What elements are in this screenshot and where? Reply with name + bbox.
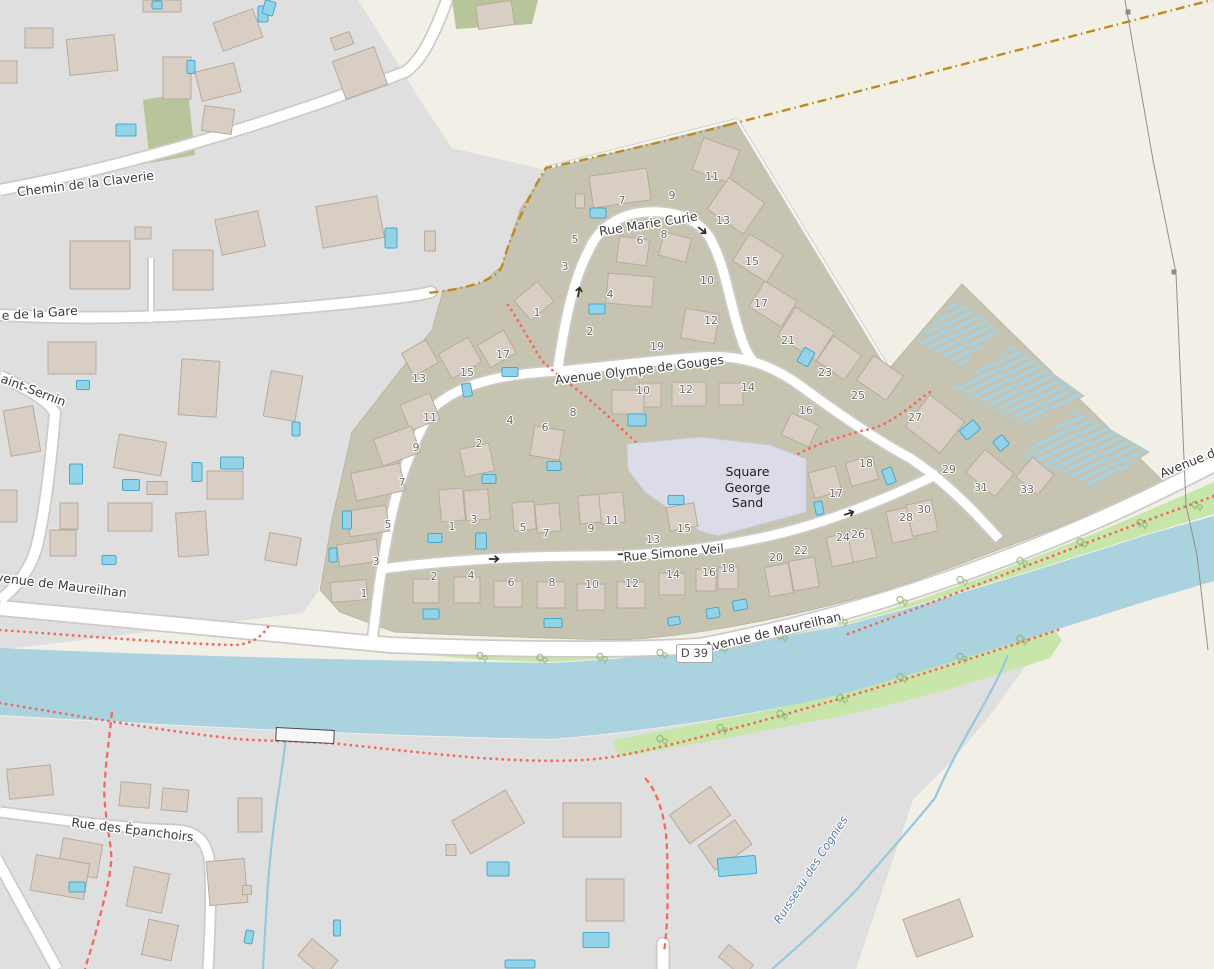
house-number: 5 bbox=[385, 518, 392, 531]
house-number: 22 bbox=[794, 544, 808, 557]
house-number: 33 bbox=[1020, 483, 1034, 496]
building bbox=[176, 511, 209, 557]
house-number: 9 bbox=[413, 441, 420, 454]
house-number: 9 bbox=[588, 522, 595, 535]
building bbox=[119, 782, 151, 809]
house-number: 31 bbox=[974, 481, 988, 494]
house-number: 14 bbox=[666, 568, 680, 581]
building bbox=[178, 359, 220, 418]
swimming-pool bbox=[244, 930, 254, 944]
house-number: 13 bbox=[646, 533, 660, 546]
house-number: 16 bbox=[799, 404, 813, 417]
building bbox=[563, 803, 621, 837]
swimming-pool bbox=[343, 511, 352, 529]
building bbox=[576, 194, 585, 208]
house-number: 11 bbox=[705, 170, 719, 183]
house-number: 3 bbox=[562, 260, 569, 273]
house-number: 8 bbox=[549, 576, 556, 589]
house-number: 18 bbox=[859, 457, 873, 470]
swimming-pool bbox=[544, 619, 562, 628]
house-number: 4 bbox=[468, 569, 475, 582]
swimming-pool bbox=[476, 533, 487, 549]
house-number: 28 bbox=[899, 511, 913, 524]
house-number: 10 bbox=[636, 384, 650, 397]
swimming-pool bbox=[221, 457, 244, 469]
building bbox=[161, 788, 189, 812]
swimming-pool bbox=[547, 462, 561, 471]
swimming-pool bbox=[423, 609, 439, 619]
swimming-pool bbox=[70, 464, 83, 484]
building bbox=[60, 503, 78, 529]
swimming-pool bbox=[102, 556, 116, 565]
house-number: 17 bbox=[496, 348, 510, 361]
house-number: 7 bbox=[619, 194, 626, 207]
house-number: 25 bbox=[851, 389, 865, 402]
swimming-pool bbox=[116, 124, 136, 136]
swimming-pool bbox=[502, 368, 518, 377]
house-number: 11 bbox=[423, 411, 437, 424]
house-number: 6 bbox=[542, 421, 549, 434]
house-number: 5 bbox=[572, 233, 579, 246]
building bbox=[135, 227, 151, 239]
house-number: 15 bbox=[677, 522, 691, 535]
house-number: 12 bbox=[679, 383, 693, 396]
house-number: 12 bbox=[625, 577, 639, 590]
building bbox=[206, 858, 248, 905]
building bbox=[7, 765, 54, 799]
swimming-pool bbox=[187, 61, 195, 74]
building bbox=[207, 471, 243, 499]
house-number: 7 bbox=[543, 527, 550, 540]
house-number: 2 bbox=[431, 570, 438, 583]
house-number: 2 bbox=[476, 437, 483, 450]
house-number: 6 bbox=[637, 234, 644, 247]
house-number: 14 bbox=[741, 381, 755, 394]
swimming-pool bbox=[482, 475, 496, 484]
road-ref-badge-d39: D 39 bbox=[676, 644, 713, 663]
house-number: 8 bbox=[661, 228, 668, 241]
building bbox=[70, 241, 130, 289]
house-number: 24 bbox=[836, 531, 850, 544]
house-number: 3 bbox=[373, 555, 380, 568]
house-number: 3 bbox=[471, 513, 478, 526]
building bbox=[789, 557, 820, 591]
swimming-pool bbox=[461, 383, 472, 397]
house-number: 21 bbox=[781, 334, 795, 347]
map-rendering: Chemin de la Claveriee de la Gareaint-Se… bbox=[0, 0, 1214, 969]
swimming-pool bbox=[717, 855, 756, 876]
house-number: 29 bbox=[942, 463, 956, 476]
house-number: 27 bbox=[908, 411, 922, 424]
square-label-line3: Sand bbox=[700, 495, 795, 511]
house-number: 6 bbox=[508, 576, 515, 589]
building bbox=[476, 1, 515, 30]
building bbox=[126, 867, 170, 914]
house-number: 17 bbox=[829, 487, 843, 500]
swimming-pool bbox=[505, 960, 535, 968]
building bbox=[586, 879, 624, 921]
swimming-pool bbox=[334, 920, 341, 936]
house-number: 15 bbox=[460, 366, 474, 379]
house-number: 8 bbox=[570, 406, 577, 419]
swimming-pool bbox=[428, 534, 442, 543]
house-number: 1 bbox=[361, 587, 368, 600]
house-number: 23 bbox=[818, 366, 832, 379]
swimming-pool bbox=[706, 607, 721, 619]
building bbox=[616, 236, 649, 266]
house-number: 5 bbox=[520, 521, 527, 534]
building bbox=[265, 532, 301, 565]
building bbox=[25, 28, 53, 48]
swimming-pool bbox=[385, 228, 397, 248]
building bbox=[439, 488, 466, 522]
building bbox=[446, 845, 456, 856]
square-label-line1: Square bbox=[700, 464, 795, 480]
house-number: 30 bbox=[917, 503, 931, 516]
house-number: 13 bbox=[412, 372, 426, 385]
house-number: 9 bbox=[669, 189, 676, 202]
house-number: 1 bbox=[534, 306, 541, 319]
house-number: 4 bbox=[507, 414, 514, 427]
house-number: 16 bbox=[702, 566, 716, 579]
building bbox=[0, 61, 17, 83]
building bbox=[66, 35, 118, 76]
building bbox=[48, 342, 96, 374]
building bbox=[346, 505, 389, 536]
building bbox=[425, 231, 436, 251]
building bbox=[238, 798, 262, 832]
swimming-pool bbox=[123, 480, 140, 491]
building bbox=[173, 250, 213, 290]
house-number: 1 bbox=[449, 520, 456, 533]
house-number: 15 bbox=[745, 255, 759, 268]
map-canvas[interactable]: Chemin de la Claveriee de la Gareaint-Se… bbox=[0, 0, 1214, 969]
house-number: 10 bbox=[585, 578, 599, 591]
building bbox=[765, 563, 794, 597]
swimming-pool bbox=[732, 599, 748, 611]
swimming-pool bbox=[589, 304, 605, 314]
house-number: 12 bbox=[704, 314, 718, 327]
swimming-pool bbox=[628, 414, 646, 426]
square-label-line2: George bbox=[700, 480, 795, 496]
swimming-pool bbox=[77, 381, 90, 390]
house-number: 18 bbox=[721, 562, 735, 575]
building bbox=[578, 494, 602, 524]
house-number: 4 bbox=[607, 288, 614, 301]
swimming-pool bbox=[329, 548, 337, 562]
house-number: 20 bbox=[769, 551, 783, 564]
square-george-sand-label: Square George Sand bbox=[700, 464, 795, 511]
swimming-pool bbox=[590, 208, 606, 218]
swimming-pool bbox=[292, 422, 300, 436]
house-number: 26 bbox=[851, 528, 865, 541]
building bbox=[243, 886, 252, 895]
house-number: 2 bbox=[587, 325, 594, 338]
building bbox=[147, 482, 167, 495]
building bbox=[50, 530, 76, 556]
footbridge bbox=[276, 727, 335, 743]
building bbox=[108, 503, 152, 531]
building bbox=[719, 383, 743, 405]
swimming-pool bbox=[583, 933, 609, 948]
house-number: 10 bbox=[700, 274, 714, 287]
swimming-pool bbox=[152, 1, 162, 9]
swimming-pool bbox=[487, 862, 509, 876]
swimming-pool bbox=[667, 616, 680, 626]
building bbox=[201, 106, 234, 135]
house-number: 19 bbox=[650, 340, 664, 353]
swimming-pool bbox=[69, 882, 85, 892]
swimming-pool bbox=[192, 463, 202, 482]
house-number: 13 bbox=[716, 214, 730, 227]
building bbox=[0, 490, 17, 522]
swimming-pool bbox=[668, 496, 684, 505]
power-pole-icon bbox=[1172, 270, 1177, 275]
power-pole-icon bbox=[1126, 10, 1131, 15]
house-number: 17 bbox=[754, 297, 768, 310]
house-number: 7 bbox=[399, 476, 406, 489]
house-number: 11 bbox=[605, 514, 619, 527]
